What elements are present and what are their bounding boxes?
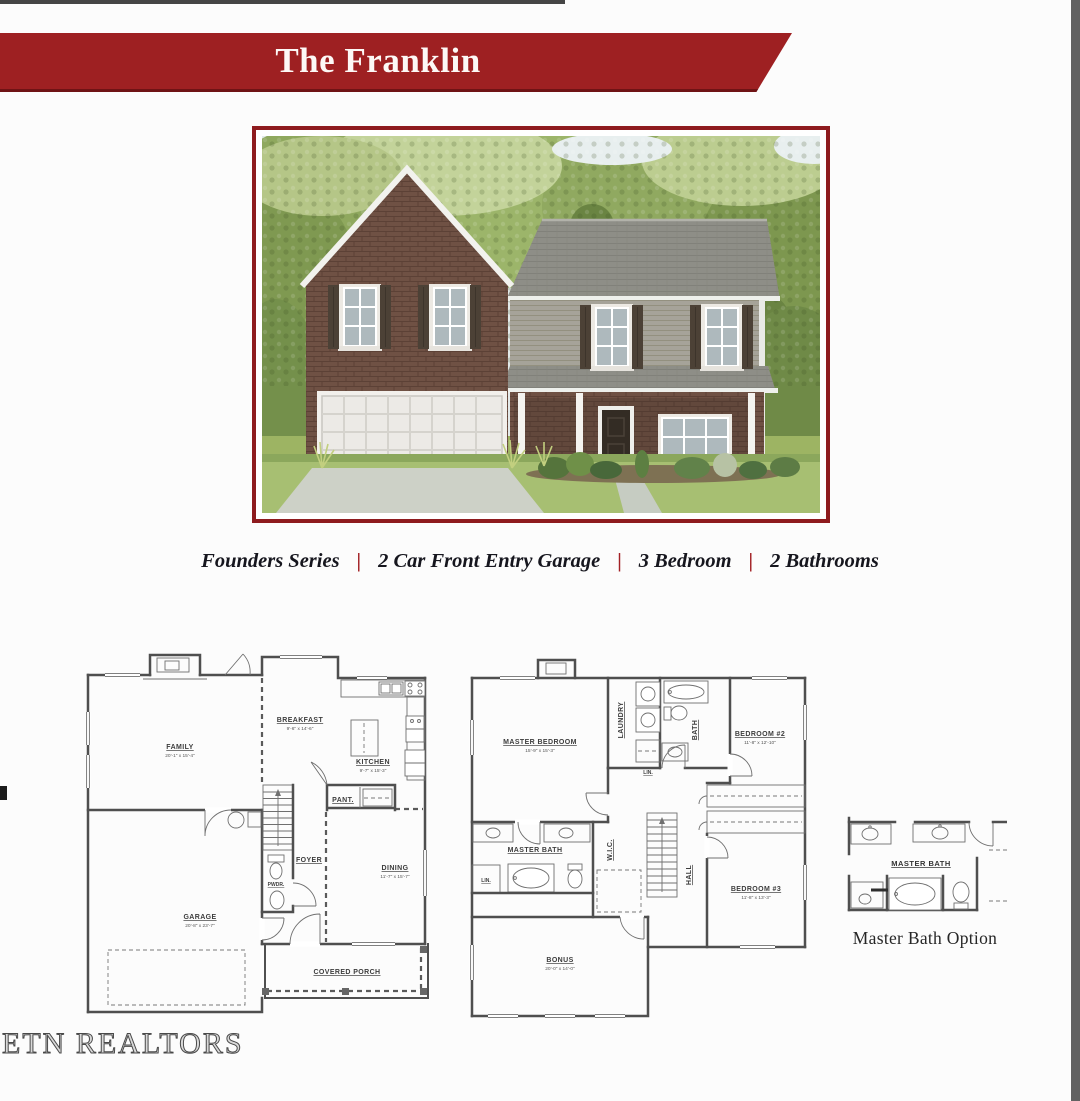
room-dims: 9'-6" x 14'-6" [287,726,314,732]
house-rendering [262,136,820,513]
room-label: HALL [686,865,693,886]
feature-bedrooms: 3 Bedroom [639,550,732,573]
feature-separator: | [749,550,754,573]
realtor-watermark: ETN REALTORS [2,1027,244,1061]
master-bath-option-caption: Master Bath Option [843,928,1007,949]
porch-window [658,414,732,460]
room-dims: 9'-7" x 15'-3" [360,768,387,774]
window-marks [87,656,427,946]
driveway [276,468,544,513]
room-label: FOYER [296,857,322,864]
top-edge-line [0,0,565,4]
room-dims: 11'-7" x 15'-7" [380,874,409,880]
room-label: FAMILY [166,744,193,751]
room-label: LIN. [643,770,653,776]
house-photo-frame [252,126,830,523]
second-floor-plan: MASTER BEDROOM 15'-9" x 15'-3" LAUNDRY B… [460,650,820,1030]
room-label: W.I.C. [607,839,614,860]
room-label: COVERED PORCH [313,969,380,976]
room-label: MASTER BATH [508,847,563,854]
feature-separator: | [357,550,362,573]
first-floor-plan: FAMILY 20'-1" x 15'-4" BREAKFAST 9'-6" x… [85,650,457,1050]
stairs [647,813,677,897]
room-label: MASTER BEDROOM [503,739,577,746]
wic-shelving [597,870,641,912]
room-label: BEDROOM #3 [731,886,781,893]
room-label: LAUNDRY [618,702,625,739]
room-label: DINING [382,865,409,872]
room-dims: 11'-8" x 12'-10" [744,740,776,746]
room-dims: 11'-8" x 13'-3" [741,895,770,901]
powder-room-fixtures [262,785,316,912]
room-dims: 15'-9" x 15'-3" [525,748,555,754]
feature-separator: | [617,550,622,573]
stairs [263,785,293,850]
title-banner: The Franklin [0,33,792,92]
room-label: PANT. [332,797,354,804]
room-label: MASTER BATH [891,859,951,868]
room-label: BEDROOM #2 [735,731,785,738]
main-roof [506,220,780,300]
plan-title: The Franklin [0,33,756,89]
scrollbar-strip[interactable] [1071,0,1080,1101]
room-label: BONUS [546,957,573,964]
hall-closets [699,783,805,833]
room-label: KITCHEN [356,759,390,766]
room-dims: 20'-1" x 15'-4" [165,753,195,759]
left-edge-mark [0,786,7,800]
master-bath-option-plan: MASTER BATH [843,806,1007,926]
room-label: GARAGE [183,914,216,921]
garage-door-area [108,950,245,1005]
room-dims: 20'-0" x 14'-0" [545,966,575,972]
room-label: LIN. [481,878,491,884]
feature-series: Founders Series [201,550,339,573]
room-label: BATH [692,720,699,741]
feature-garage: 2 Car Front Entry Garage [378,550,600,573]
room-label: PWDR. [268,882,285,888]
kitchen-island [351,720,378,756]
features-row: Founders Series | 2 Car Front Entry Gara… [10,550,1070,573]
room-label: BREAKFAST [277,717,324,724]
feature-bathrooms: 2 Bathrooms [770,550,879,573]
room-dims: 20'-8" x 23'-7" [185,923,215,929]
water-heater [228,812,244,828]
flyer-page: The Franklin [0,0,1080,1101]
